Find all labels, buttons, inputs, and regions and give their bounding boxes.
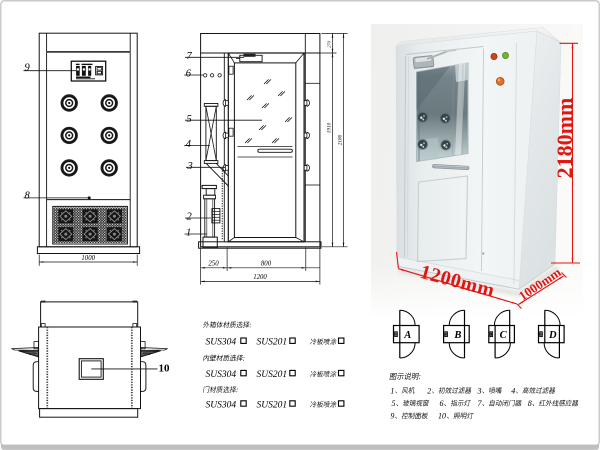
svg-text:2: 2 <box>427 386 431 395</box>
svg-text:5: 5 <box>187 114 192 125</box>
svg-text:4: 4 <box>511 386 515 395</box>
svg-text:8: 8 <box>528 399 532 408</box>
svg-text:1910: 1910 <box>326 122 332 133</box>
svg-text:SUS304: SUS304 <box>206 338 237 348</box>
svg-text:5: 5 <box>392 399 396 408</box>
svg-text:9: 9 <box>390 412 394 421</box>
svg-text:C: C <box>500 330 508 341</box>
svg-text:6: 6 <box>186 69 192 80</box>
svg-text:SUS201: SUS201 <box>257 338 288 348</box>
svg-text:SUS304: SUS304 <box>206 400 237 410</box>
svg-text:D: D <box>548 330 557 341</box>
svg-text:7: 7 <box>187 51 193 62</box>
svg-text:250: 250 <box>208 260 219 267</box>
svg-text:1200: 1200 <box>253 274 267 281</box>
svg-text:SUS201: SUS201 <box>257 400 288 410</box>
svg-text:1: 1 <box>390 386 394 395</box>
svg-text:B: B <box>453 330 461 341</box>
svg-text:1000: 1000 <box>81 255 95 262</box>
svg-text:1: 1 <box>186 228 191 239</box>
svg-text:2180mm: 2180mm <box>552 98 577 179</box>
svg-text:6: 6 <box>440 399 444 408</box>
svg-text:3: 3 <box>477 386 482 395</box>
svg-text:3: 3 <box>187 161 193 172</box>
svg-text:SUS201: SUS201 <box>257 370 288 380</box>
svg-text:10: 10 <box>159 363 171 375</box>
svg-text:4: 4 <box>186 139 192 150</box>
svg-text:A: A <box>403 330 411 341</box>
svg-text:270: 270 <box>326 40 331 47</box>
svg-text:2180: 2180 <box>337 134 343 145</box>
svg-text:8: 8 <box>25 190 31 201</box>
svg-text:10: 10 <box>438 412 446 421</box>
svg-text:800: 800 <box>261 260 272 267</box>
svg-text:2: 2 <box>187 212 193 223</box>
svg-text:SUS304: SUS304 <box>206 370 237 380</box>
svg-text:9: 9 <box>25 63 31 74</box>
